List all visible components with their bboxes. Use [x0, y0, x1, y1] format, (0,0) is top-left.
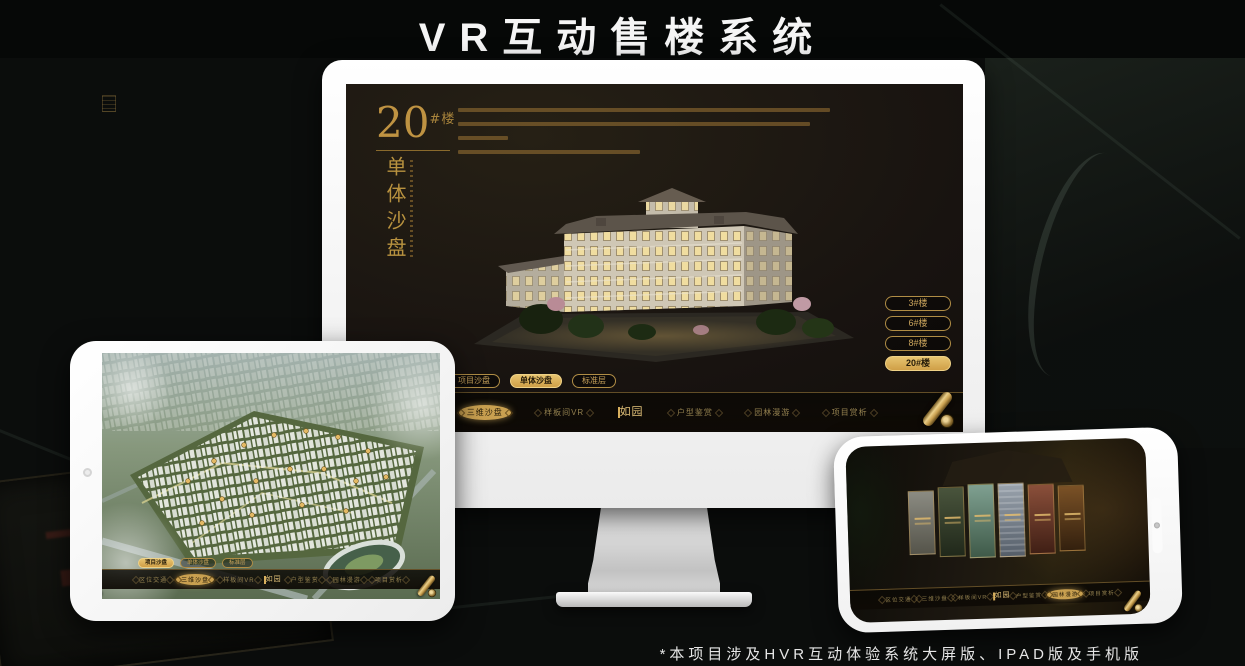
scroll-menu-icon[interactable]	[102, 574, 104, 599]
tablet-subtabs: 项目沙盘 单体沙盘 标准层	[138, 558, 253, 568]
nav-item-3d-sandbox[interactable]: 三维沙盘	[459, 405, 511, 420]
subtab-single-sandbox[interactable]: 单体沙盘	[180, 558, 216, 568]
gallery-card[interactable]	[1028, 484, 1056, 555]
brand-logo: 如园	[618, 407, 644, 418]
vertical-caption-decor	[410, 160, 413, 260]
tablet-screen: 项目沙盘 单体沙盘 标准层 区位交通 三维沙盘 样板间VR 如园 户型鉴赏 园林…	[102, 353, 440, 599]
monitor-base	[556, 592, 752, 607]
nav-item-3d-sandbox[interactable]: 三维沙盘	[917, 592, 953, 603]
building-3d-model[interactable]	[446, 150, 876, 368]
bg-gold-seal	[102, 95, 116, 112]
monitor-stand	[588, 506, 720, 596]
description-text-line	[458, 122, 810, 126]
panorama-gallery	[904, 478, 1088, 564]
subtab-standard-floor[interactable]: 标准层	[572, 374, 616, 388]
page-title: VR互动售楼系统	[0, 5, 1245, 63]
nav-item-garden-tour[interactable]: 园林漫游	[328, 574, 366, 585]
description-text-line	[458, 108, 830, 112]
gallery-card[interactable]	[938, 486, 966, 557]
footnote-text: *本项目涉及HVR互动体验系统大屏版、IPAD版及手机版	[660, 643, 1143, 664]
subtab-single-sandbox[interactable]: 单体沙盘	[510, 374, 562, 388]
nav-item-project-review[interactable]: 项目赏析	[370, 574, 408, 585]
scroll-menu-icon[interactable]	[919, 389, 957, 431]
nav-item-garden-tour[interactable]: 园林漫游	[746, 405, 798, 420]
nav-item-project-review[interactable]: 项目赏析	[1083, 587, 1119, 598]
gold-divider	[376, 150, 450, 151]
phone-screen: 区位交通 三维沙盘 样板间VR 如园 户型鉴赏 园林漫游 项目赏析	[845, 438, 1150, 623]
block-number-heading: 20#楼	[376, 98, 455, 147]
tablet-camera-icon	[83, 468, 92, 477]
nav-item-showroom-vr[interactable]: 样板间VR	[953, 591, 992, 602]
scroll-menu-icon[interactable]	[1121, 589, 1145, 615]
nav-item-floorplan[interactable]: 户型鉴赏	[1011, 589, 1047, 600]
section-title-vertical: 单体沙盘	[380, 156, 409, 264]
nav-item-3d-sandbox[interactable]: 三维沙盘	[176, 574, 214, 585]
nav-item-garden-tour[interactable]: 园林漫游	[1047, 588, 1083, 599]
description-text-line	[458, 136, 508, 140]
nav-item-showroom-vr[interactable]: 样板间VR	[218, 574, 259, 585]
tablet-bottom-nav: 区位交通 三维沙盘 样板间VR 如园 户型鉴赏 园林漫游 项目赏析	[102, 569, 440, 589]
building-button-8[interactable]: 8#楼	[885, 336, 951, 351]
subtab-project-sandbox[interactable]: 项目沙盘	[448, 374, 500, 388]
gallery-card[interactable]	[968, 483, 996, 558]
nav-item-project-review[interactable]: 项目赏析	[824, 405, 876, 420]
nav-item-floorplan[interactable]: 户型鉴赏	[669, 405, 721, 420]
building-selector: 3#楼 6#楼 8#楼 20#楼	[885, 296, 951, 371]
nav-item-location[interactable]: 区位交通	[134, 574, 172, 585]
nav-item-showroom-vr[interactable]: 样板间VR	[536, 405, 592, 420]
nav-item-location[interactable]: 区位交通	[880, 593, 916, 604]
scroll-menu-icon[interactable]	[415, 574, 438, 599]
building-button-3[interactable]: 3#楼	[885, 296, 951, 311]
subtab-project-sandbox[interactable]: 项目沙盘	[138, 558, 174, 568]
building-button-20-active[interactable]: 20#楼	[885, 356, 951, 371]
gallery-card[interactable]	[1058, 485, 1086, 552]
subtab-standard-floor[interactable]: 标准层	[222, 558, 253, 568]
phone-device: 区位交通 三维沙盘 样板间VR 如园 户型鉴赏 园林漫游 项目赏析	[833, 427, 1183, 634]
gallery-card[interactable]	[998, 482, 1026, 557]
promo-canvas: VR互动售楼系统 20#楼 单体沙盘	[0, 0, 1245, 666]
gallery-card[interactable]	[908, 490, 936, 555]
building-button-6[interactable]: 6#楼	[885, 316, 951, 331]
nav-item-floorplan[interactable]: 户型鉴赏	[286, 574, 324, 585]
brand-logo: 如园	[264, 576, 282, 583]
block-number-suffix: #楼	[429, 112, 455, 127]
monitor-subtabs: 项目沙盘 单体沙盘 标准层	[448, 374, 616, 388]
